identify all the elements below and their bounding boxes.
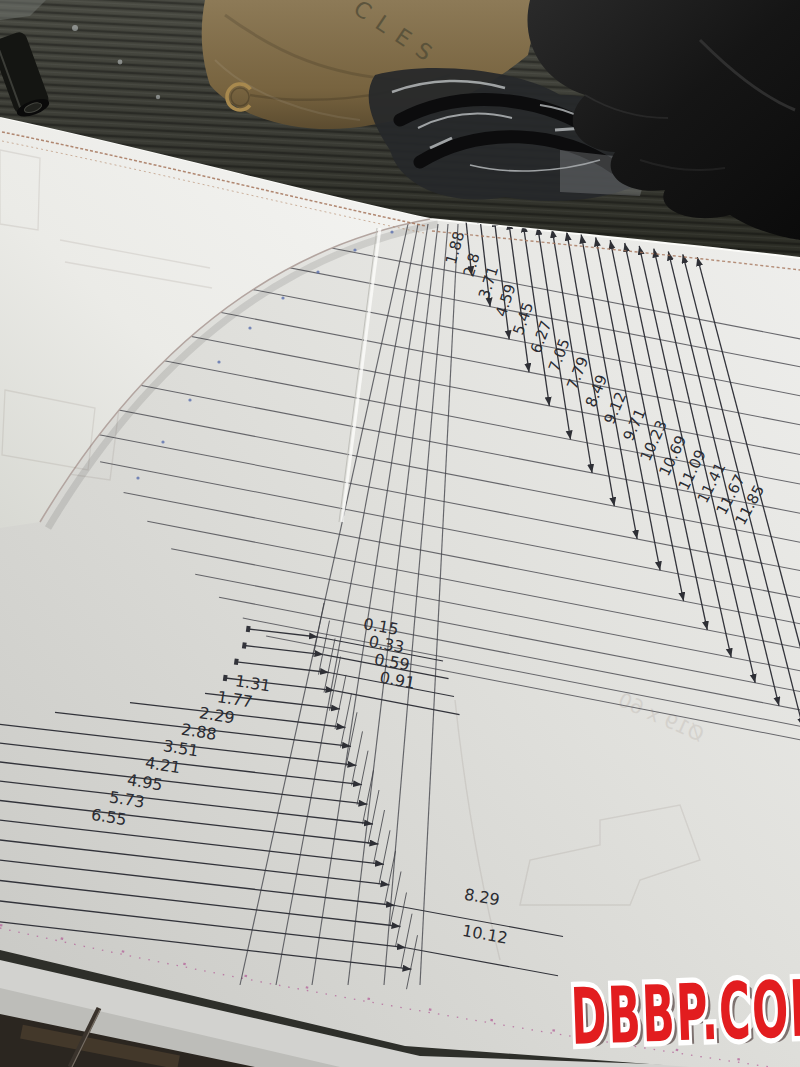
dimension-tick (246, 626, 251, 632)
watermark: DBBP.COM DBBP.COM (569, 963, 800, 1067)
dimension-tick (234, 659, 239, 665)
dimension-tick (223, 675, 228, 681)
dimension-tick (242, 642, 247, 648)
photo-scene: CLES (0, 0, 800, 1067)
watermark-text: DBBP.COM (569, 963, 800, 1063)
